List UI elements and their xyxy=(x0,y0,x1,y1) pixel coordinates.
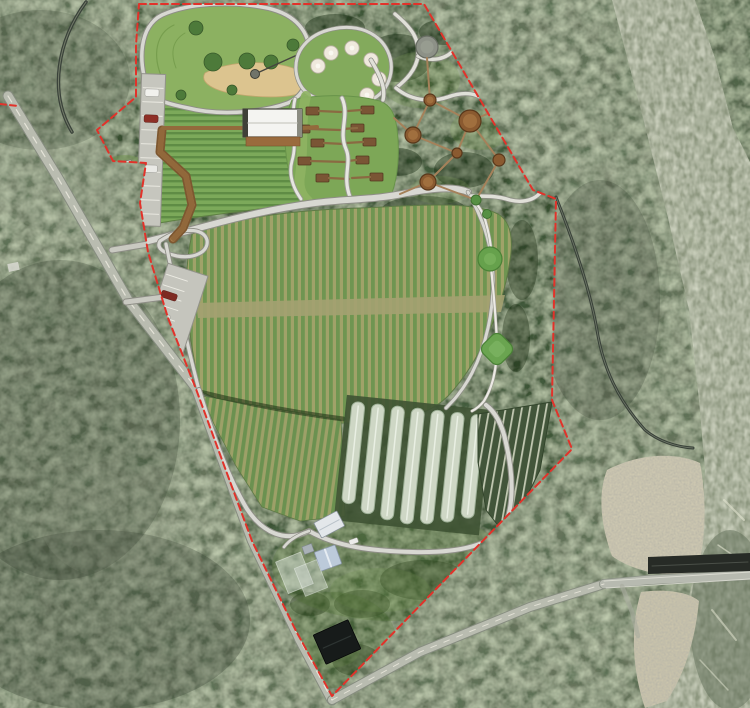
platform-stem xyxy=(348,110,361,111)
tent-platform xyxy=(306,107,319,115)
lawn-pod-inner xyxy=(484,253,496,265)
tent-platform xyxy=(298,157,311,165)
treehouse-platform-deck xyxy=(427,97,434,104)
tent-platform xyxy=(363,138,376,146)
forest-shade xyxy=(540,180,660,420)
zipline-platform xyxy=(251,70,260,79)
dome-tent-top xyxy=(365,93,370,98)
parked-car-red xyxy=(144,115,158,123)
dome-tent-top xyxy=(316,64,321,69)
platform-stem xyxy=(346,142,363,143)
aerial-master-plan xyxy=(0,0,750,708)
tent-platform xyxy=(361,106,374,114)
lawn-tree xyxy=(287,39,299,51)
platform-stem xyxy=(311,161,346,162)
lawn-tree xyxy=(176,90,186,100)
lawn-pod xyxy=(483,210,492,219)
lawn-tree xyxy=(189,21,203,35)
lawn-tree xyxy=(227,85,237,95)
deck-walk xyxy=(302,127,317,128)
parked-car-white xyxy=(145,89,159,97)
platform-stem xyxy=(319,111,341,112)
tent-platform xyxy=(316,174,329,182)
tent-platform xyxy=(311,139,324,147)
dome-tent-top xyxy=(350,46,355,51)
treehouse-platform xyxy=(493,154,505,166)
lawn-pod xyxy=(471,195,481,205)
platform-stem xyxy=(324,143,344,144)
main-building-end xyxy=(297,109,302,137)
stone-lookout-inner xyxy=(421,41,434,54)
treehouse-platform-deck xyxy=(463,114,477,128)
main-building-end xyxy=(243,109,248,137)
lawn-tree xyxy=(204,53,222,71)
canopy-shadow xyxy=(502,304,530,372)
building-terrace xyxy=(246,137,300,146)
treehouse-platform-deck xyxy=(408,130,418,140)
tent-platform xyxy=(370,173,383,181)
tent-platform xyxy=(356,156,369,164)
forest-light xyxy=(40,460,200,580)
platform-stem xyxy=(352,177,370,178)
site-plan-map xyxy=(0,0,750,708)
treehouse-platform-deck xyxy=(423,177,433,187)
treehouse-platform xyxy=(452,148,462,158)
lawn-tree xyxy=(239,53,255,69)
dome-tent-top xyxy=(329,51,334,56)
